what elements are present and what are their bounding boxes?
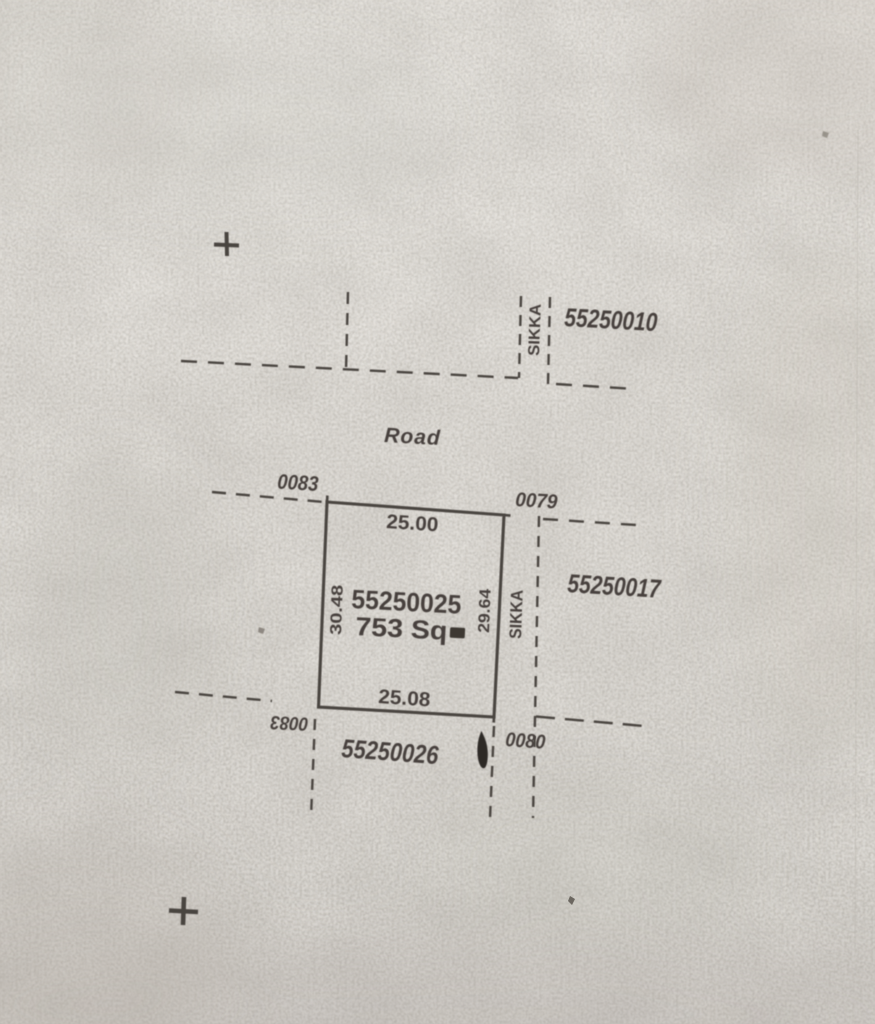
svg-text:55250017: 55250017: [567, 568, 663, 604]
svg-text:Road: Road: [384, 424, 442, 450]
svg-text:55250010: 55250010: [564, 302, 659, 337]
svg-text:0080: 0080: [505, 729, 546, 754]
svg-text:0083: 0083: [269, 711, 308, 734]
svg-text:30.48: 30.48: [328, 584, 347, 635]
svg-text:25.00: 25.00: [386, 511, 439, 536]
svg-text:SIKKA: SIKKA: [506, 590, 527, 640]
svg-text:SIKKA: SIKKA: [526, 303, 545, 356]
svg-text:0083: 0083: [277, 471, 320, 496]
svg-text:0079: 0079: [515, 489, 559, 514]
svg-text:753 Sq: 753 Sq: [355, 611, 448, 646]
svg-text:25.08: 25.08: [378, 686, 431, 711]
svg-text:29.64: 29.64: [476, 588, 495, 633]
